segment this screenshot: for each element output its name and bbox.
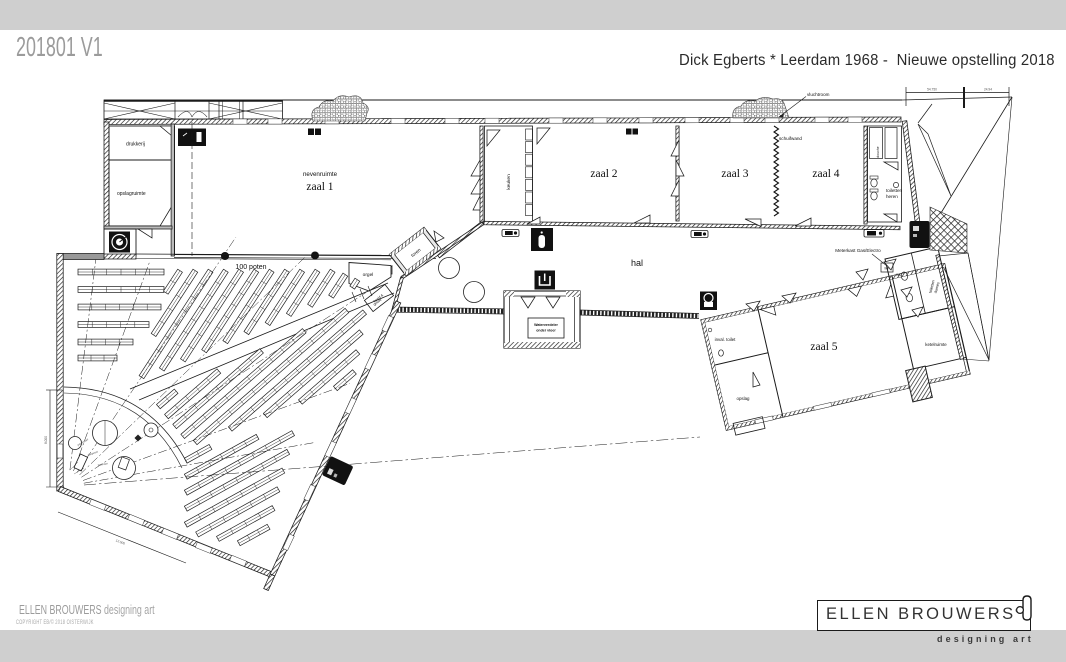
svg-text:lezenaar: lezenaar — [97, 461, 108, 467]
svg-text:toiletten: toiletten — [886, 188, 903, 193]
svg-text:54.750: 54.750 — [927, 88, 937, 92]
svg-text:heren: heren — [886, 194, 898, 199]
svg-text:12.500: 12.500 — [115, 538, 126, 545]
svg-text:vluchtroom: vluchtroom — [807, 92, 830, 97]
svg-text:zaal 3: zaal 3 — [721, 168, 748, 180]
svg-text:Waterverdeler: Waterverdeler — [534, 323, 558, 327]
svg-text:drukkerij: drukkerij — [126, 142, 145, 148]
svg-text:Meterkast Gas/Electro: Meterkast Gas/Electro — [835, 248, 881, 253]
svg-text:opslagruimte: opslagruimte — [117, 191, 146, 197]
svg-text:ketelruimte: ketelruimte — [925, 342, 947, 347]
svg-text:WC: WC — [896, 273, 903, 277]
svg-text:schuifwand: schuifwand — [779, 136, 802, 141]
svg-text:douche: douche — [876, 146, 880, 157]
svg-text:opslag: opslag — [737, 396, 750, 401]
svg-text:orgel: orgel — [363, 272, 374, 278]
svg-text:doopvont: doopvont — [87, 449, 99, 457]
svg-text:24.94: 24.94 — [984, 88, 992, 92]
svg-text:zaal 4: zaal 4 — [812, 168, 839, 180]
svg-text:onder vloer: onder vloer — [536, 329, 556, 333]
svg-text:inval. toilet: inval. toilet — [715, 337, 737, 342]
svg-text:8.000: 8.000 — [44, 436, 48, 444]
svg-text:zaal 5: zaal 5 — [810, 341, 837, 353]
svg-text:MK: MK — [884, 267, 890, 271]
svg-text:zaal 1: zaal 1 — [306, 181, 333, 193]
svg-text:nevenruimte: nevenruimte — [303, 171, 338, 178]
svg-text:zaal 2: zaal 2 — [590, 168, 617, 180]
svg-text:keuken: keuken — [506, 174, 512, 190]
svg-text:hal: hal — [631, 258, 643, 268]
